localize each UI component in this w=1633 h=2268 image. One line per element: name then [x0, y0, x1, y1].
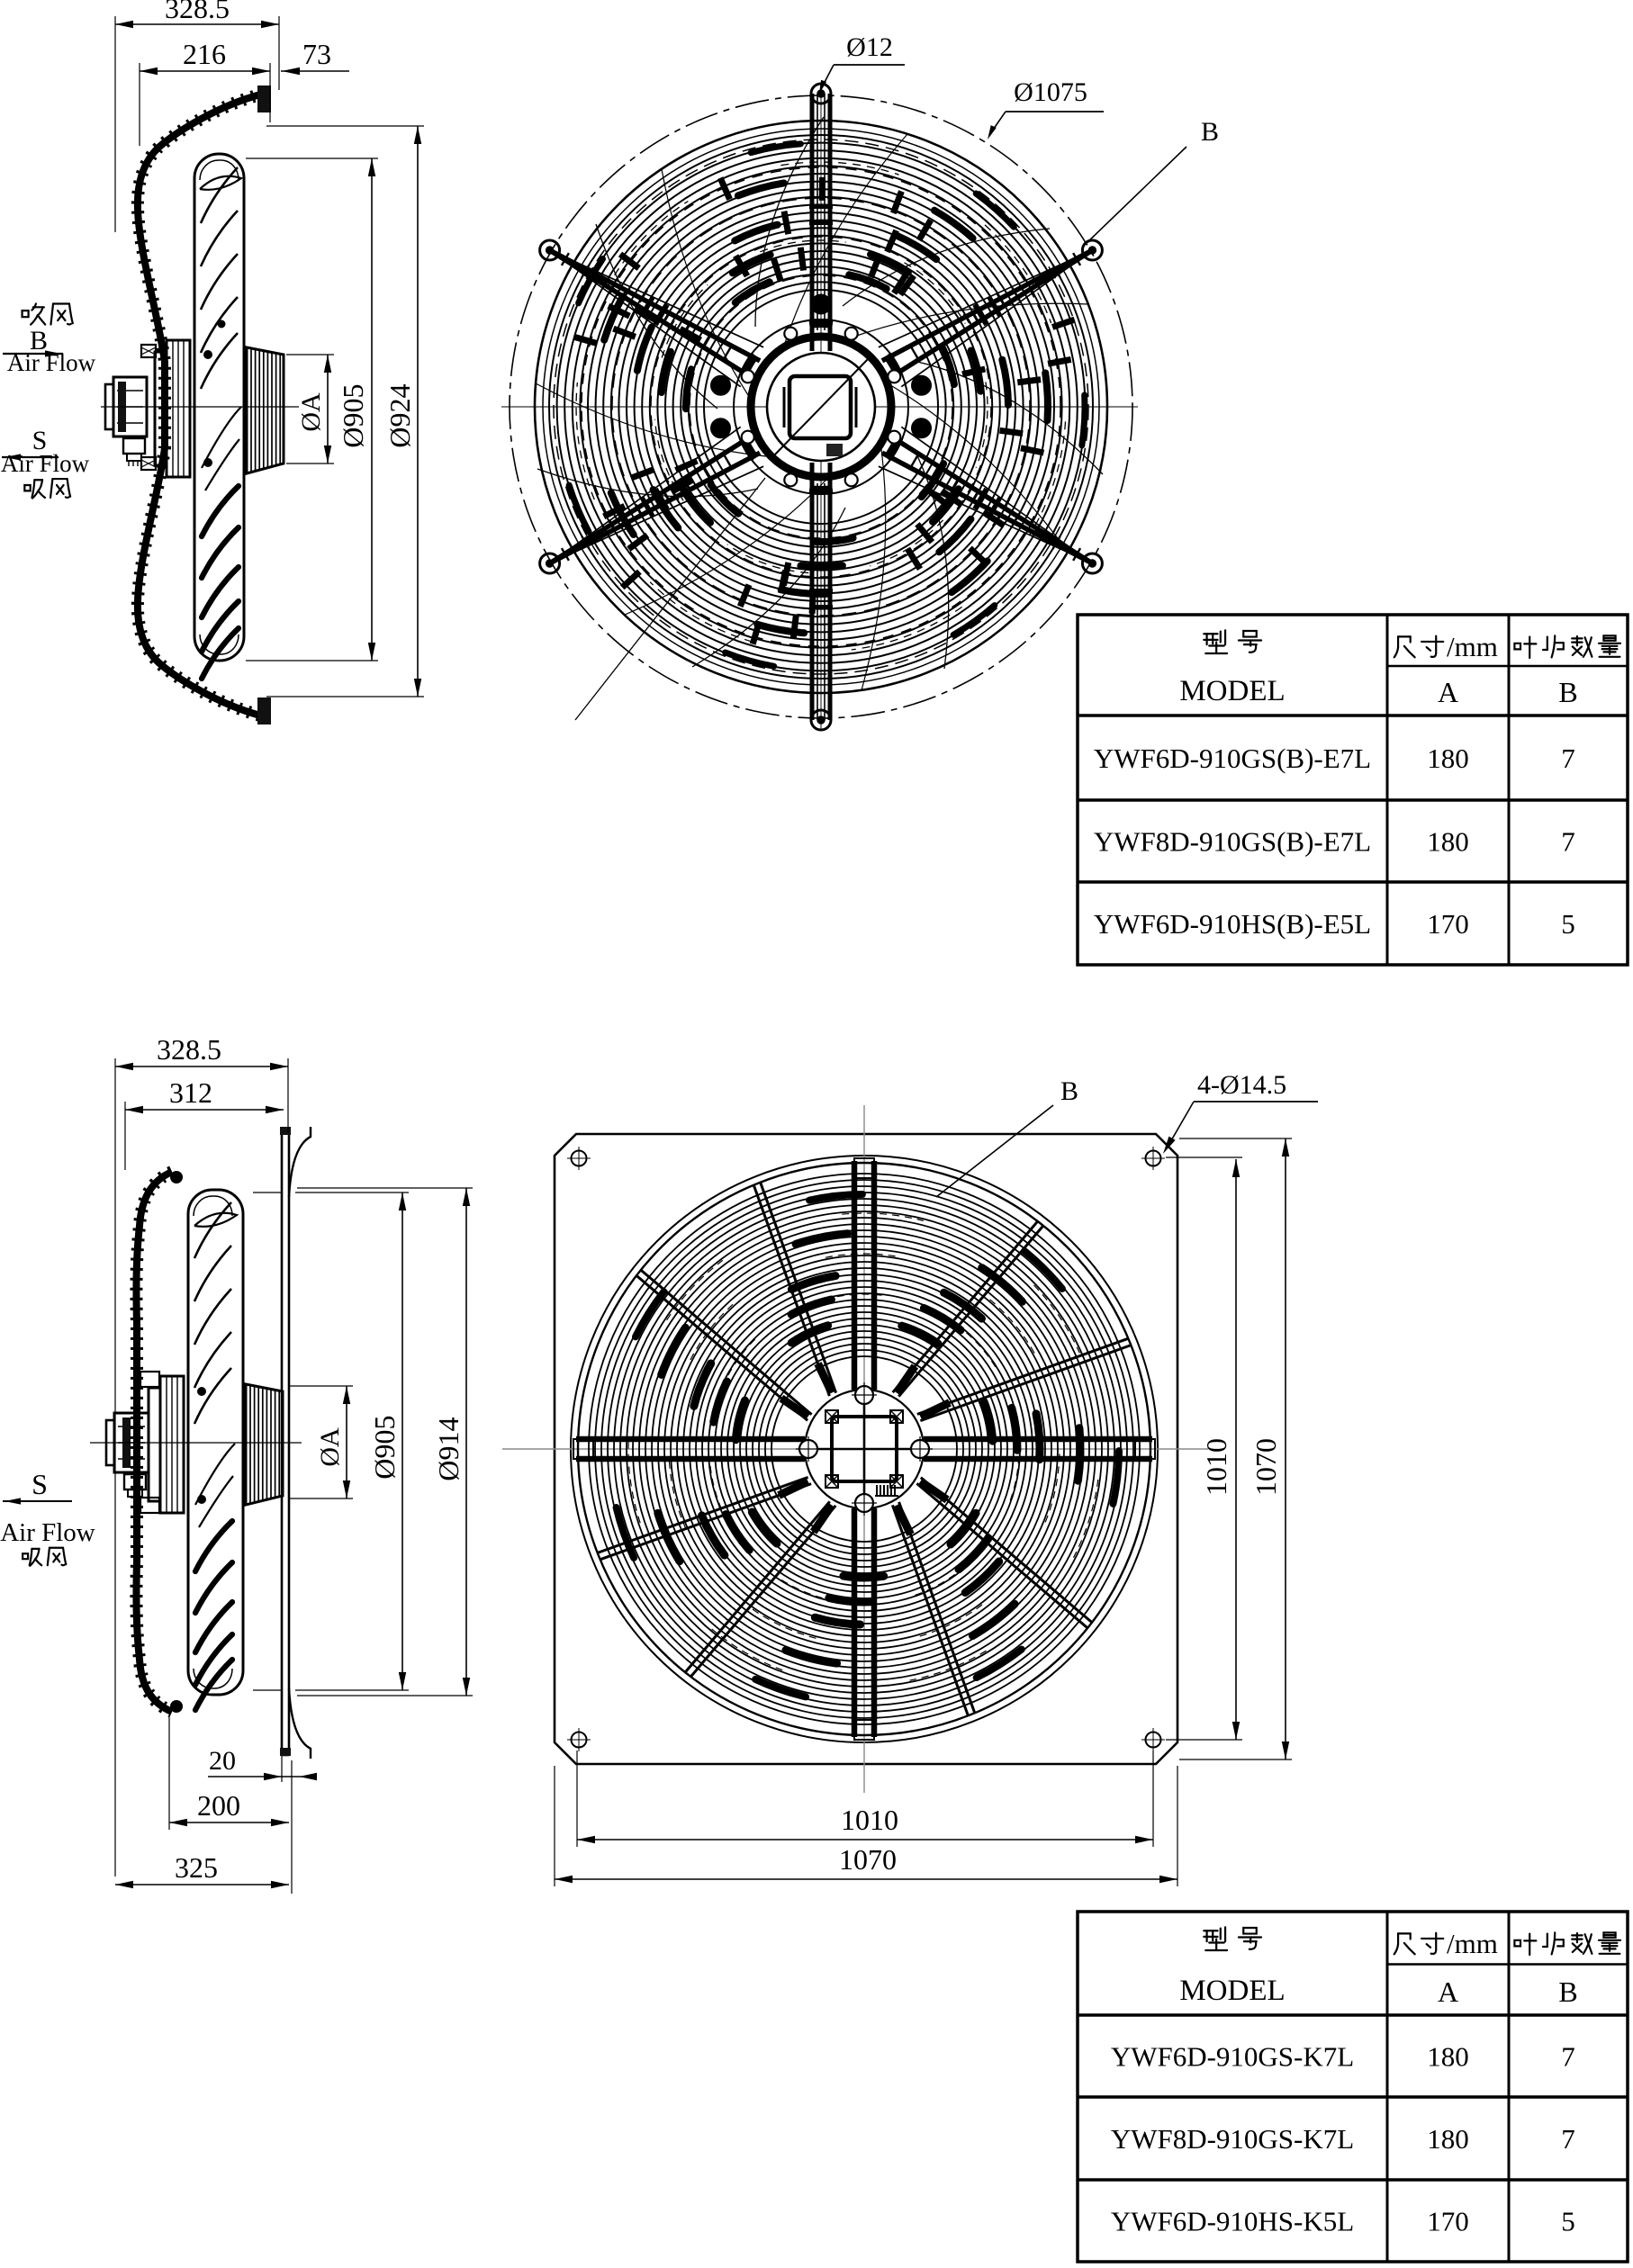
svg-text:170: 170 — [1427, 2206, 1469, 2237]
svg-text:1070: 1070 — [839, 1843, 897, 1876]
svg-text:A: A — [1438, 676, 1458, 708]
svg-text:Ø914: Ø914 — [432, 1417, 465, 1480]
svg-text:328.5: 328.5 — [157, 1033, 221, 1066]
svg-text:/mm: /mm — [1447, 631, 1498, 662]
svg-text:Ø12: Ø12 — [846, 32, 893, 62]
svg-text:5: 5 — [1561, 2206, 1575, 2237]
svg-text:312: 312 — [169, 1076, 212, 1109]
svg-text:Air Flow: Air Flow — [0, 1518, 95, 1547]
svg-text:180: 180 — [1427, 2041, 1469, 2073]
svg-text:ØA: ØA — [315, 1427, 345, 1467]
svg-text:YWF8D-910GS(B)-E7L: YWF8D-910GS(B)-E7L — [1094, 826, 1371, 858]
svg-text:B: B — [1060, 1076, 1078, 1106]
svg-text:Air Flow: Air Flow — [1, 450, 90, 477]
svg-text:73: 73 — [302, 38, 331, 70]
svg-text:/mm: /mm — [1447, 1928, 1498, 1959]
svg-text:200: 200 — [197, 1789, 240, 1822]
svg-text:5: 5 — [1561, 908, 1575, 940]
svg-text:YWF6D-910HS(B)-E5L: YWF6D-910HS(B)-E5L — [1094, 908, 1371, 940]
svg-text:7: 7 — [1561, 2123, 1575, 2155]
svg-text:S: S — [32, 1468, 48, 1500]
svg-text:7: 7 — [1561, 742, 1575, 774]
svg-text:Ø1075: Ø1075 — [1014, 77, 1087, 107]
svg-text:A: A — [1438, 1975, 1458, 2008]
svg-text:Air Flow: Air Flow — [7, 349, 96, 376]
svg-text:YWF6D-910GS(B)-E7L: YWF6D-910GS(B)-E7L — [1094, 742, 1371, 774]
svg-text:YWF6D-910GS-K7L: YWF6D-910GS-K7L — [1111, 2041, 1354, 2073]
svg-text:7: 7 — [1561, 2041, 1575, 2073]
svg-text:20: 20 — [209, 1746, 236, 1776]
svg-text:YWF8D-910GS-K7L: YWF8D-910GS-K7L — [1111, 2123, 1354, 2155]
svg-text:216: 216 — [183, 38, 226, 70]
svg-text:Ø924: Ø924 — [383, 383, 416, 447]
svg-text:Ø905: Ø905 — [337, 383, 369, 447]
svg-text:170: 170 — [1427, 908, 1469, 940]
svg-text:YWF6D-910HS-K5L: YWF6D-910HS-K5L — [1111, 2206, 1354, 2237]
svg-text:Ø905: Ø905 — [368, 1415, 401, 1479]
svg-text:ØA: ØA — [296, 392, 326, 432]
svg-text:1010: 1010 — [1200, 1438, 1232, 1496]
svg-text:180: 180 — [1427, 2123, 1469, 2155]
svg-text:1010: 1010 — [841, 1804, 898, 1836]
svg-text:7: 7 — [1561, 826, 1575, 858]
svg-text:B: B — [1201, 117, 1219, 147]
svg-text:180: 180 — [1427, 826, 1469, 858]
svg-text:B: B — [1558, 1975, 1577, 2008]
svg-text:325: 325 — [175, 1851, 218, 1884]
svg-text:B: B — [1558, 676, 1577, 708]
svg-text:MODEL: MODEL — [1179, 675, 1285, 707]
svg-text:180: 180 — [1427, 742, 1469, 774]
svg-text:4-Ø14.5: 4-Ø14.5 — [1197, 1070, 1286, 1100]
svg-text:1070: 1070 — [1250, 1438, 1282, 1496]
svg-text:MODEL: MODEL — [1179, 1975, 1285, 2007]
svg-text:328.5: 328.5 — [165, 0, 230, 24]
